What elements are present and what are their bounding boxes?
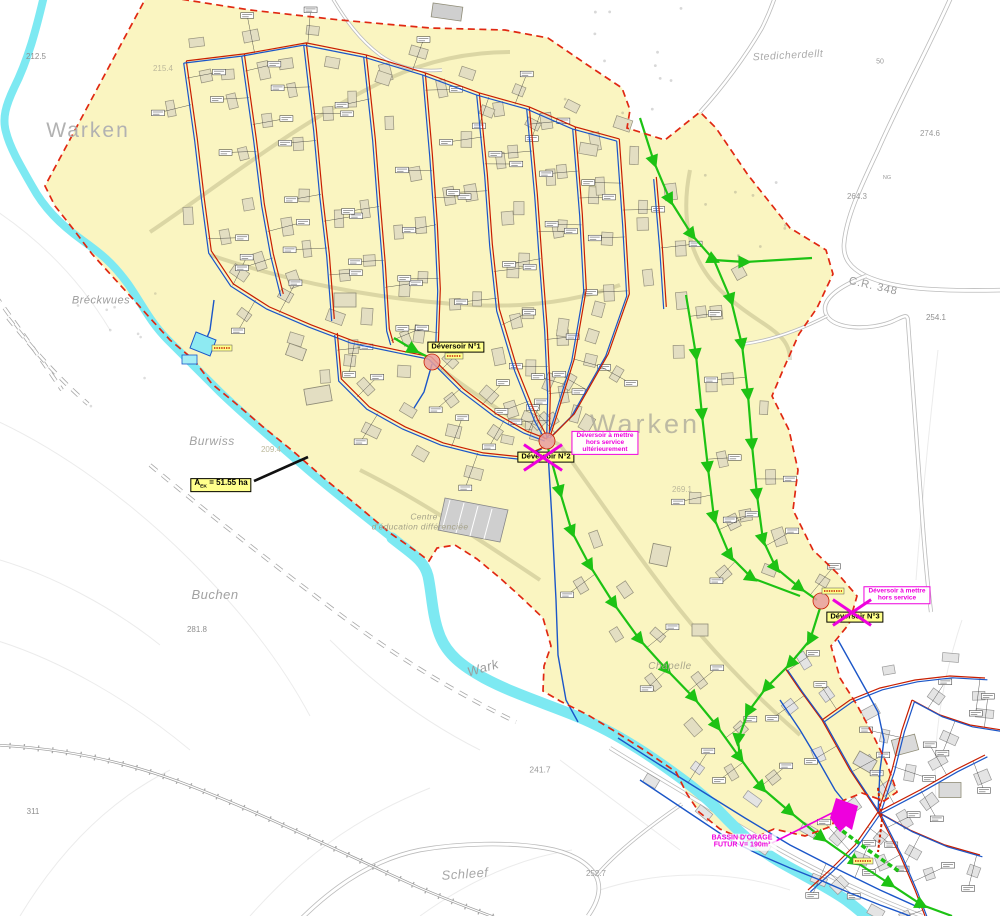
catchment-area [45, 0, 897, 841]
map-viewport: WarkenWarkenBréckwuesBurwissBuchenStedic… [0, 0, 1000, 916]
map-canvas [0, 0, 1000, 916]
railway [0, 745, 502, 916]
